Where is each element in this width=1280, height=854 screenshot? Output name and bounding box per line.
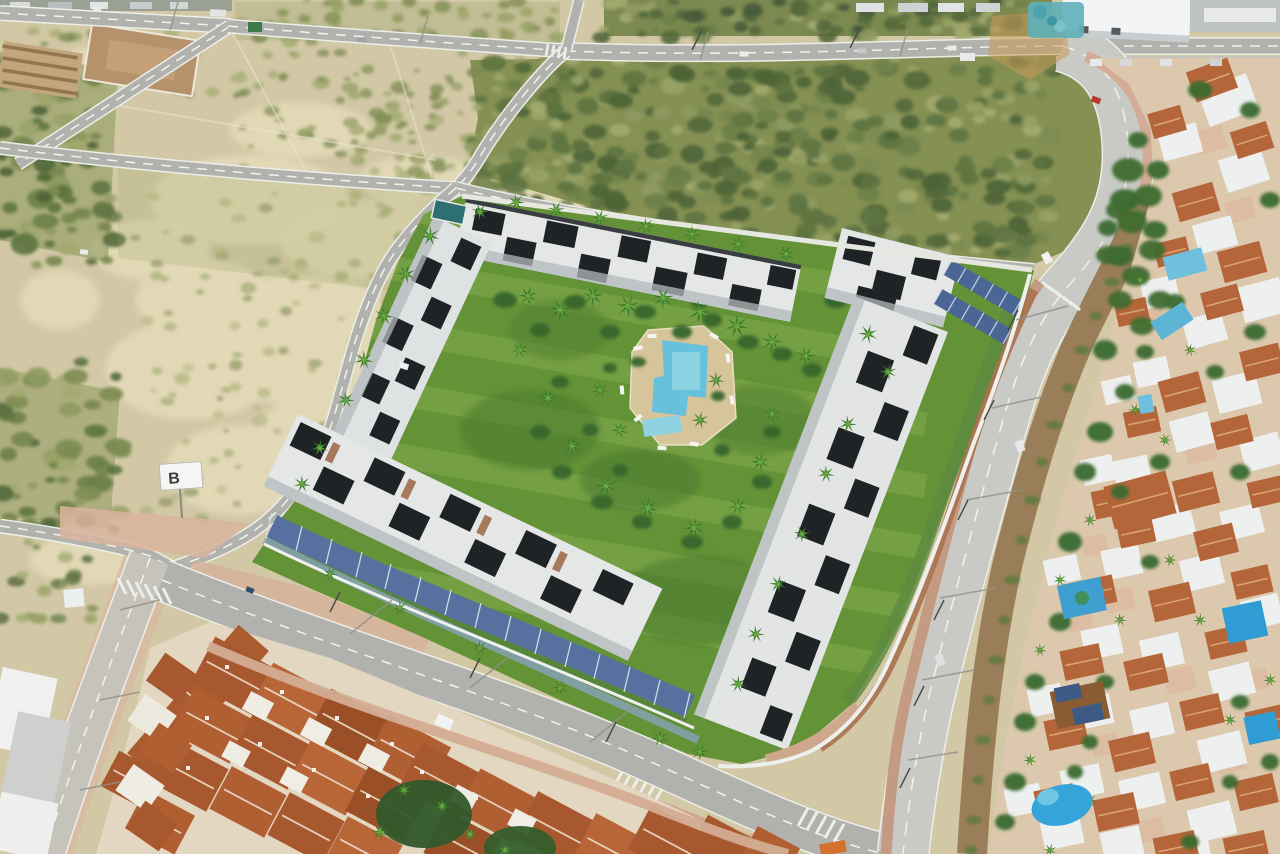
svg-text:B: B	[168, 470, 181, 488]
